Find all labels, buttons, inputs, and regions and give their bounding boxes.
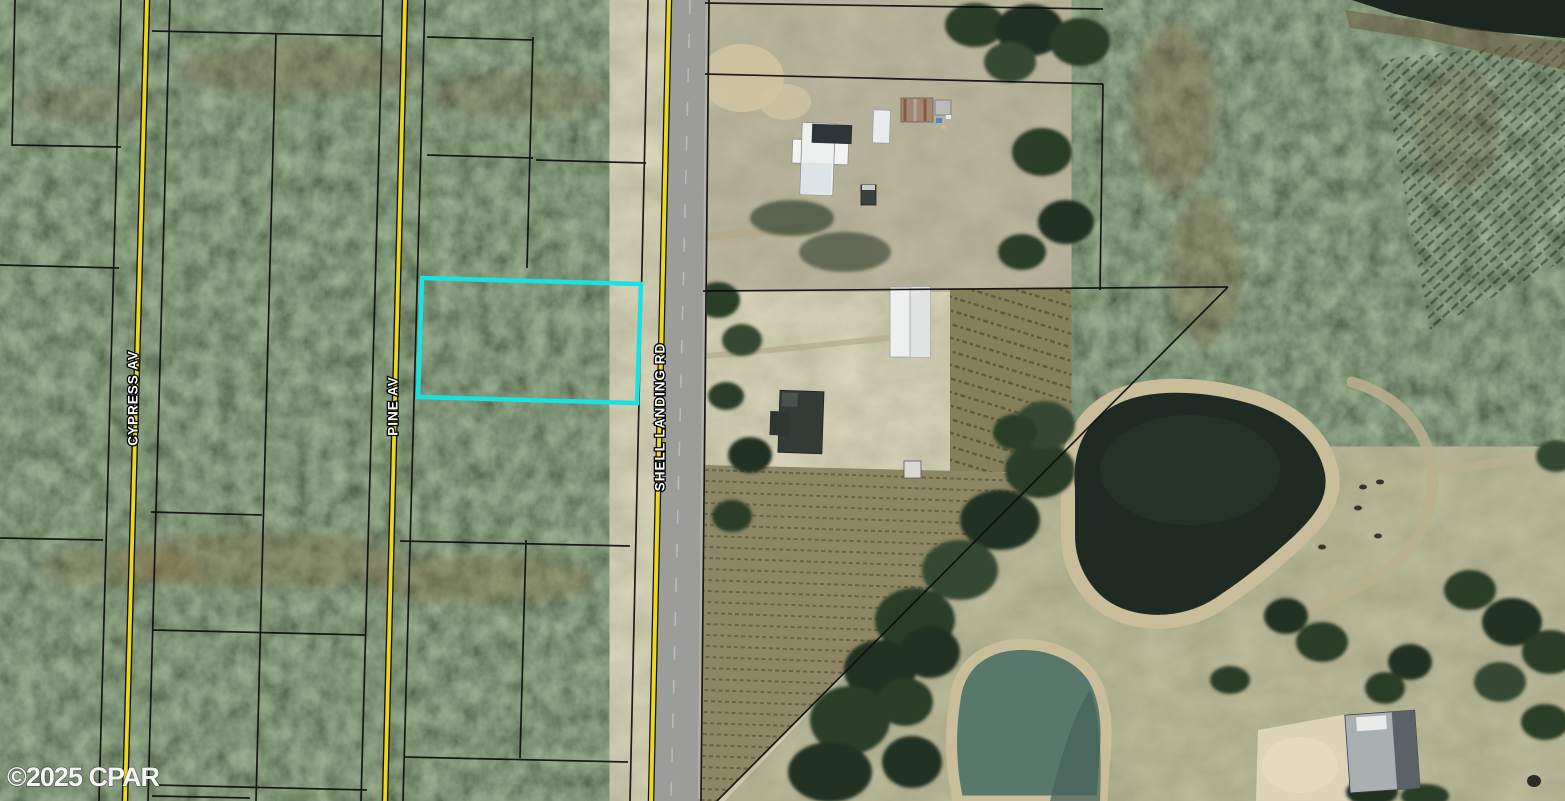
copyright-watermark: ©2025 CPAR	[7, 762, 159, 792]
shed-rusty	[901, 98, 933, 122]
pond-north-sheen	[1100, 415, 1280, 525]
pine-av-label: PINE AV	[386, 376, 401, 436]
pond-south	[952, 644, 1107, 801]
map-viewport: CYPRESS AV PINE AV SHELL LANDING RD ©202…	[0, 0, 1565, 801]
barn-white	[890, 287, 930, 357]
shed-middle	[904, 461, 921, 478]
round-tank	[1527, 775, 1541, 787]
shell-landing-rd-label: SHELL LANDING RD	[653, 343, 668, 492]
aerial-parcel-map: CYPRESS AV PINE AV SHELL LANDING RD ©202…	[0, 0, 1565, 801]
house-north-dark-roof	[812, 124, 853, 144]
rv-trailer	[872, 110, 890, 144]
cypress-av-label: CYPRESS AV	[126, 350, 141, 446]
shed-small-dark	[861, 185, 876, 205]
building-southeast	[1345, 710, 1420, 793]
shed-gray	[935, 100, 951, 115]
